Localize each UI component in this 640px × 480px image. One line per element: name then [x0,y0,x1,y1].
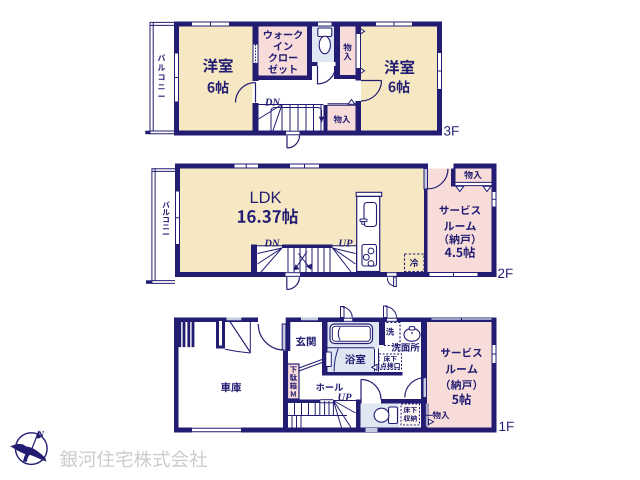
svg-text:N: N [36,431,45,441]
svg-text:UP: UP [339,238,354,249]
svg-text:1F: 1F [499,419,515,434]
svg-text:3F: 3F [444,124,460,139]
svg-text:DN: DN [263,238,280,249]
svg-text:LDK: LDK [249,189,281,207]
svg-text:2F: 2F [498,266,514,281]
svg-text:UP: UP [338,393,353,404]
svg-text:DN: DN [264,98,281,109]
